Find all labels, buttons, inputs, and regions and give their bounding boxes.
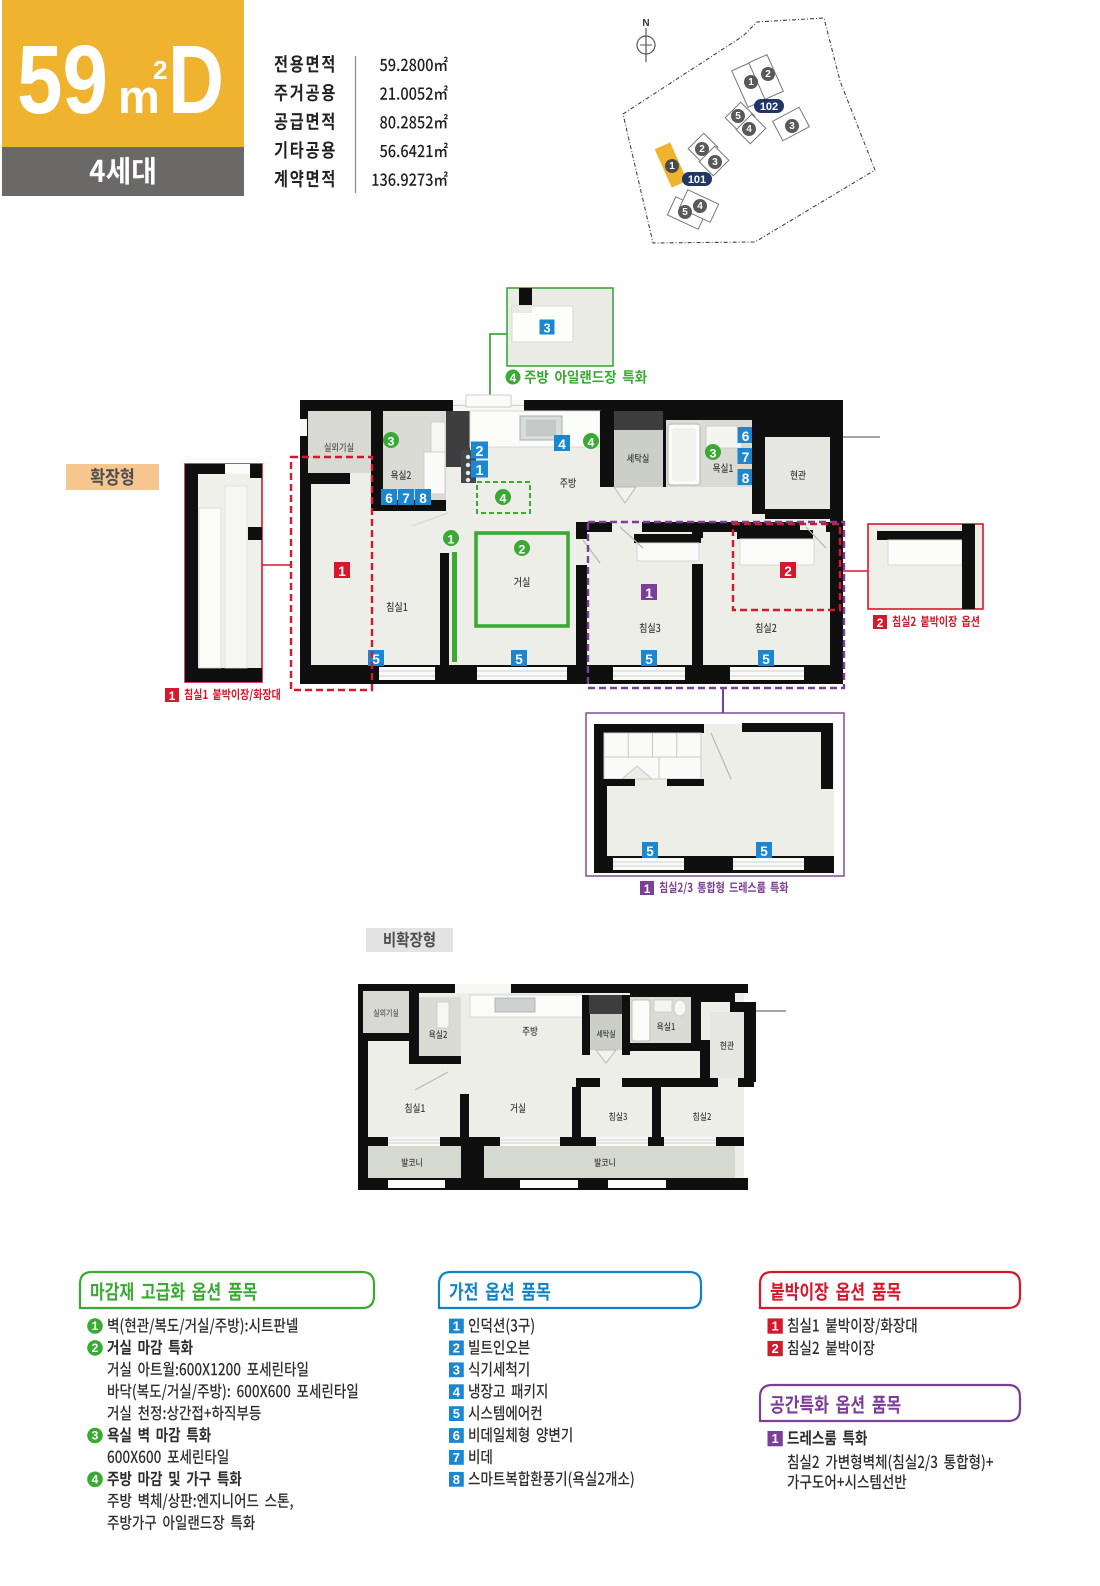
svg-text:1: 1 (92, 1319, 99, 1333)
svg-text:6: 6 (742, 429, 750, 444)
svg-text:3: 3 (543, 320, 550, 335)
svg-text:2: 2 (475, 444, 483, 460)
svg-text:4: 4 (746, 124, 752, 135)
svg-text:1: 1 (338, 564, 346, 579)
svg-text:101: 101 (688, 174, 706, 186)
svg-text:5: 5 (372, 652, 380, 667)
svg-text:1: 1 (645, 586, 653, 601)
svg-text:3: 3 (712, 157, 718, 168)
svg-text:8: 8 (453, 1472, 460, 1487)
svg-text:3: 3 (388, 434, 395, 448)
svg-text:4: 4 (92, 1473, 99, 1487)
svg-text:2: 2 (877, 616, 884, 630)
svg-text:3: 3 (92, 1429, 99, 1443)
svg-text:2: 2 (765, 69, 771, 80)
svg-text:5: 5 (453, 1406, 460, 1421)
svg-text:2: 2 (153, 55, 167, 85)
svg-text:8: 8 (419, 491, 427, 506)
svg-text:1: 1 (771, 1431, 778, 1446)
svg-text:4: 4 (697, 201, 703, 212)
svg-text:5: 5 (762, 652, 770, 667)
svg-text:3: 3 (789, 121, 795, 132)
svg-text:2: 2 (92, 1341, 99, 1355)
svg-text:5: 5 (682, 207, 688, 218)
svg-text:5: 5 (760, 844, 768, 859)
svg-text:5: 5 (646, 844, 654, 859)
svg-text:3: 3 (453, 1362, 460, 1377)
svg-text:1: 1 (169, 689, 176, 703)
svg-text:1: 1 (771, 1319, 778, 1334)
svg-text:N: N (642, 18, 649, 29)
svg-text:8: 8 (742, 471, 750, 486)
svg-text:7: 7 (742, 450, 750, 465)
svg-text:2: 2 (519, 542, 526, 556)
svg-text:7: 7 (402, 491, 410, 506)
svg-text:2: 2 (699, 144, 705, 155)
svg-text:5: 5 (645, 652, 653, 667)
svg-text:4: 4 (500, 491, 507, 505)
svg-text:2: 2 (784, 564, 792, 579)
svg-text:4: 4 (453, 1384, 461, 1399)
svg-text:6: 6 (453, 1428, 460, 1443)
svg-text:4: 4 (510, 372, 517, 385)
svg-text:1: 1 (669, 161, 675, 172)
svg-text:6: 6 (385, 491, 393, 506)
svg-text:1: 1 (453, 1319, 460, 1334)
svg-text:4: 4 (558, 437, 566, 452)
svg-text:2: 2 (453, 1341, 460, 1356)
svg-text:59: 59 (17, 25, 108, 134)
svg-text:102: 102 (760, 101, 778, 113)
svg-text:4: 4 (588, 435, 595, 449)
svg-text:2: 2 (771, 1341, 778, 1356)
svg-text:5: 5 (515, 652, 523, 667)
svg-text:D: D (168, 25, 224, 134)
svg-text:5: 5 (735, 111, 741, 122)
svg-text:1: 1 (475, 463, 483, 479)
svg-text:1: 1 (748, 77, 754, 88)
svg-text:7: 7 (453, 1450, 460, 1465)
svg-text:3: 3 (710, 446, 717, 460)
svg-text:1: 1 (448, 532, 455, 546)
svg-text:1: 1 (644, 882, 651, 896)
